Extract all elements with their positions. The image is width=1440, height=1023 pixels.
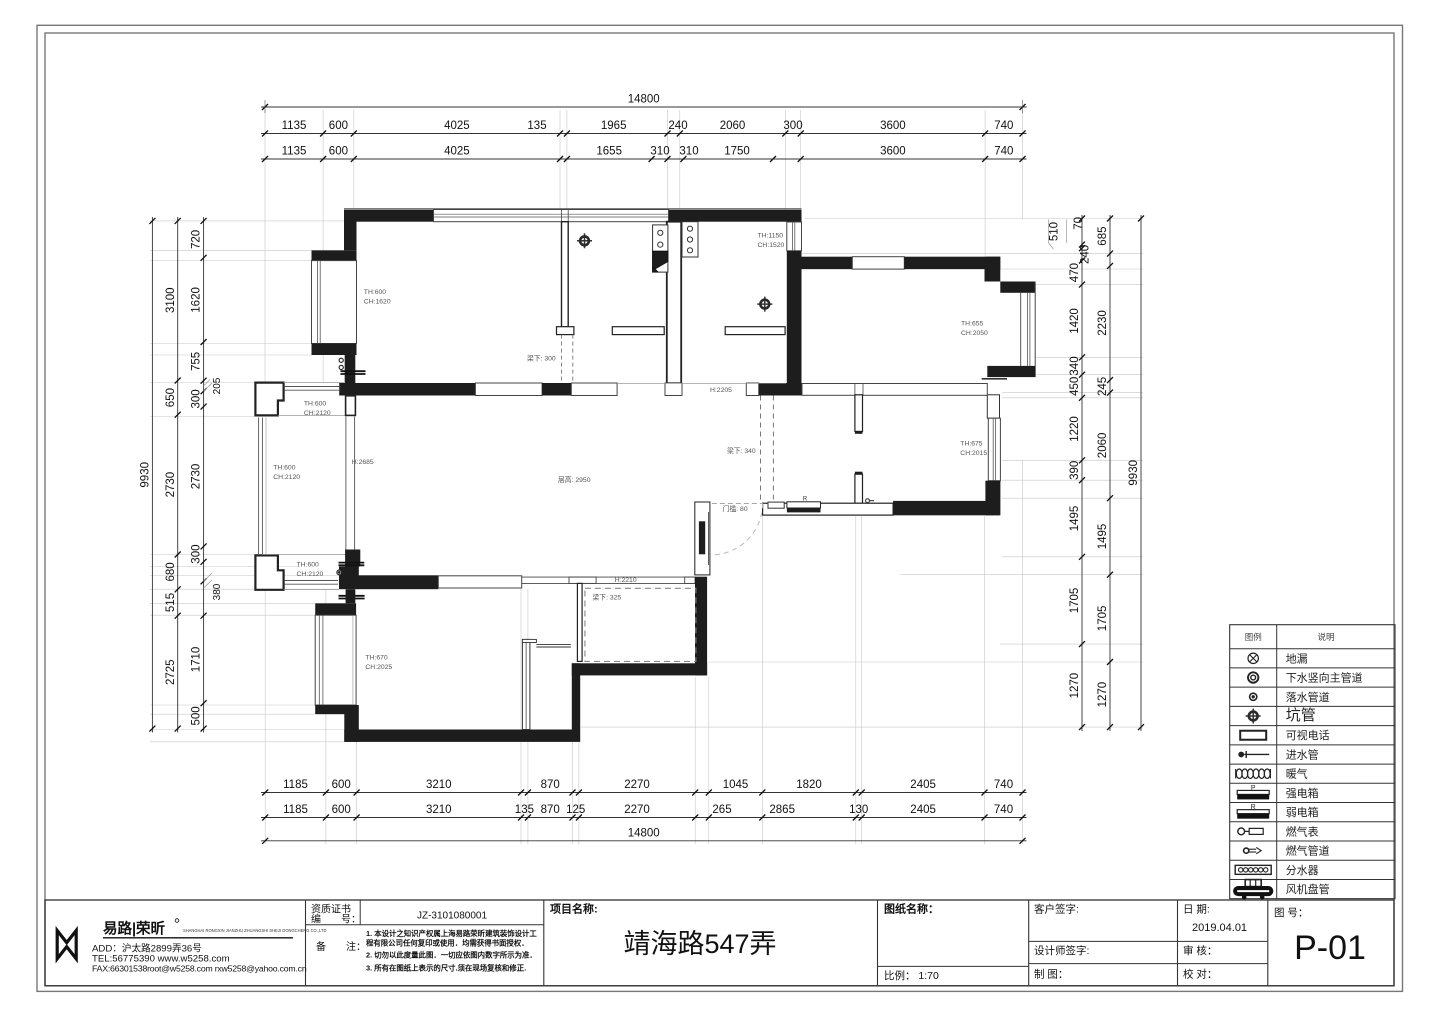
svg-text:注：: 注： xyxy=(346,940,366,953)
svg-text:500: 500 xyxy=(191,706,203,725)
svg-text:600: 600 xyxy=(332,804,351,816)
svg-text:9930: 9930 xyxy=(1128,460,1140,486)
svg-text:强电箱: 强电箱 xyxy=(1286,786,1319,800)
svg-text:1820: 1820 xyxy=(796,779,822,791)
svg-text:梁下: 340: 梁下: 340 xyxy=(727,446,756,455)
svg-text:CH:2050: CH:2050 xyxy=(961,330,988,337)
svg-text:备: 备 xyxy=(316,940,326,953)
svg-text:梁下: 300: 梁下: 300 xyxy=(527,354,556,363)
svg-text:SHANGHAI RONGXIN JIANZHU ZHUAN: SHANGHAI RONGXIN JIANZHU ZHUANGSHI SHEJI… xyxy=(183,928,326,933)
svg-text:1705: 1705 xyxy=(1097,606,1109,632)
svg-text:1135: 1135 xyxy=(282,120,307,132)
svg-text:坑管: 坑管 xyxy=(1286,707,1316,724)
svg-text:H:2685: H:2685 xyxy=(352,459,374,466)
svg-text:130: 130 xyxy=(849,804,868,816)
svg-text:300: 300 xyxy=(191,389,203,408)
svg-text:265: 265 xyxy=(712,804,731,816)
svg-text:205: 205 xyxy=(212,377,223,394)
svg-text:TH:675: TH:675 xyxy=(960,441,983,448)
svg-text:说明: 说明 xyxy=(1317,632,1334,642)
svg-text:CH:2015: CH:2015 xyxy=(960,450,987,457)
svg-text:1620: 1620 xyxy=(191,287,203,313)
svg-text:3600: 3600 xyxy=(880,120,906,132)
svg-text:2270: 2270 xyxy=(624,804,650,816)
svg-text:2730: 2730 xyxy=(191,464,203,490)
svg-text:CH:2025: CH:2025 xyxy=(365,664,392,671)
svg-text:515: 515 xyxy=(165,593,177,612)
svg-text:门槛: 80: 门槛: 80 xyxy=(723,504,748,513)
svg-text:470: 470 xyxy=(1069,263,1081,282)
svg-text:TH:600: TH:600 xyxy=(273,465,296,472)
svg-text:日 期:: 日 期: xyxy=(1183,904,1210,916)
svg-text:450: 450 xyxy=(1069,377,1081,396)
svg-text:600: 600 xyxy=(332,779,351,791)
svg-text:14800: 14800 xyxy=(628,827,660,839)
svg-text:校 对：: 校 对： xyxy=(1183,968,1217,981)
svg-text:3210: 3210 xyxy=(426,779,452,791)
svg-text:CH:2120: CH:2120 xyxy=(297,571,324,578)
svg-text:P-01: P-01 xyxy=(1294,929,1366,967)
svg-text:720: 720 xyxy=(191,230,203,249)
svg-text:600: 600 xyxy=(329,120,348,132)
svg-text:300: 300 xyxy=(191,545,203,564)
svg-text:870: 870 xyxy=(541,779,560,791)
svg-text:H:2210: H:2210 xyxy=(615,577,637,584)
svg-text:TH:1150: TH:1150 xyxy=(758,233,784,240)
svg-text:客户签字:: 客户签字: xyxy=(1034,903,1079,916)
svg-text:300: 300 xyxy=(783,120,802,132)
svg-text:1. 本设计之知识产权属上海易路荣昕建筑装饰设计工: 1. 本设计之知识产权属上海易路荣昕建筑装饰设计工 xyxy=(366,929,537,938)
svg-text:3100: 3100 xyxy=(165,287,177,313)
svg-text:审 核：: 审 核： xyxy=(1183,944,1217,957)
svg-text:1495: 1495 xyxy=(1097,524,1109,550)
svg-text:2270: 2270 xyxy=(624,779,650,791)
svg-text:可视电话: 可视电话 xyxy=(1286,728,1330,742)
svg-text:风机盘管: 风机盘管 xyxy=(1286,882,1330,896)
svg-text:740: 740 xyxy=(994,804,1013,816)
svg-text:1270: 1270 xyxy=(1069,673,1081,699)
svg-text:2405: 2405 xyxy=(910,779,936,791)
svg-text:740: 740 xyxy=(994,120,1013,132)
svg-text:245: 245 xyxy=(1097,377,1109,396)
svg-text:程有限公司任何复印或使用．均需获得书面授权．: 程有限公司任何复印或使用．均需获得书面授权． xyxy=(366,939,529,948)
svg-text:TH:655: TH:655 xyxy=(961,321,984,328)
svg-text:2019.04.01: 2019.04.01 xyxy=(1192,922,1247,934)
svg-text:TH:670: TH:670 xyxy=(365,655,388,662)
svg-text:680: 680 xyxy=(165,562,177,581)
svg-text:3. 所有在图纸上表示的尺寸.须在现场复核和修正.: 3. 所有在图纸上表示的尺寸.须在现场复核和修正. xyxy=(366,964,526,973)
svg-text:图例: 图例 xyxy=(1245,632,1262,642)
svg-text:650: 650 xyxy=(165,388,177,407)
svg-text:2405: 2405 xyxy=(910,804,936,816)
svg-text:2730: 2730 xyxy=(165,472,177,498)
svg-text:740: 740 xyxy=(994,146,1013,158)
svg-text:燃气表: 燃气表 xyxy=(1286,824,1319,838)
svg-text:弱电箱: 弱电箱 xyxy=(1286,805,1319,819)
svg-text:靖海路547弄: 靖海路547弄 xyxy=(623,929,776,959)
svg-text:2. 切勿以此度量此图．一切应依图内数字所示为准．: 2. 切勿以此度量此图．一切应依图内数字所示为准． xyxy=(366,951,537,960)
svg-text:比例： 1:70: 比例： 1:70 xyxy=(884,969,939,982)
svg-text:310: 310 xyxy=(650,146,669,158)
svg-text:1495: 1495 xyxy=(1069,506,1081,532)
svg-text:340: 340 xyxy=(1069,356,1081,375)
svg-text:3210: 3210 xyxy=(426,804,452,816)
svg-text:CH:2120: CH:2120 xyxy=(273,474,300,481)
svg-text:TH:600: TH:600 xyxy=(364,289,387,296)
svg-text:易路|荣昕: 易路|荣昕 xyxy=(103,920,166,938)
svg-text:制 图：: 制 图： xyxy=(1034,968,1068,981)
svg-text:H:2205: H:2205 xyxy=(710,387,732,394)
svg-text:JZ-3101080001: JZ-3101080001 xyxy=(417,911,487,922)
svg-text:2230: 2230 xyxy=(1097,310,1109,336)
svg-text:1185: 1185 xyxy=(283,804,308,816)
svg-text:14800: 14800 xyxy=(628,94,660,106)
svg-text:510: 510 xyxy=(1049,222,1061,241)
svg-text:1045: 1045 xyxy=(723,779,749,791)
svg-text:号：: 号： xyxy=(341,914,361,926)
svg-text:240: 240 xyxy=(668,120,687,132)
svg-text:暖气: 暖气 xyxy=(1286,767,1308,781)
svg-text:1135: 1135 xyxy=(282,146,307,158)
svg-text:燃气管道: 燃气管道 xyxy=(1286,844,1330,858)
svg-text:70: 70 xyxy=(1073,217,1085,230)
svg-text:310: 310 xyxy=(679,146,698,158)
svg-text:编: 编 xyxy=(311,913,321,926)
svg-text:390: 390 xyxy=(1069,461,1081,480)
svg-text:CH:1520: CH:1520 xyxy=(758,242,785,249)
svg-text:设计师签字:: 设计师签字: xyxy=(1034,944,1089,957)
svg-text:CH:1620: CH:1620 xyxy=(364,299,391,306)
svg-text:2725: 2725 xyxy=(165,659,177,685)
svg-text:1655: 1655 xyxy=(596,146,622,158)
svg-text:4025: 4025 xyxy=(444,120,470,132)
svg-text:TH:600: TH:600 xyxy=(304,401,327,408)
svg-text:下水竖向主管道: 下水竖向主管道 xyxy=(1286,671,1363,685)
svg-text:R: R xyxy=(803,497,808,503)
svg-text:2865: 2865 xyxy=(769,804,795,816)
svg-text:380: 380 xyxy=(212,583,223,600)
svg-text:FAX:66301538root@w5258.com rxw: FAX:66301538root@w5258.com rxw5258@yahoo… xyxy=(92,964,307,974)
svg-text:1750: 1750 xyxy=(724,146,750,158)
svg-text:740: 740 xyxy=(994,779,1013,791)
svg-text:落水管道: 落水管道 xyxy=(1286,690,1330,704)
svg-text:梁下: 325: 梁下: 325 xyxy=(593,593,622,602)
svg-text:CH:2120: CH:2120 xyxy=(304,410,331,417)
svg-text:1705: 1705 xyxy=(1069,588,1081,614)
svg-text:图 号：: 图 号： xyxy=(1274,907,1308,919)
svg-text:图纸名称：: 图纸名称： xyxy=(884,902,939,916)
svg-text:1420: 1420 xyxy=(1069,308,1081,334)
svg-text:TH:600: TH:600 xyxy=(297,562,320,569)
svg-text:240: 240 xyxy=(1080,245,1092,264)
svg-text:125: 125 xyxy=(566,804,585,816)
svg-text:870: 870 xyxy=(541,804,560,816)
svg-text:地漏: 地漏 xyxy=(1286,652,1308,665)
svg-text:135: 135 xyxy=(527,120,546,132)
svg-text:2060: 2060 xyxy=(720,120,746,132)
svg-text:755: 755 xyxy=(191,352,203,371)
svg-text:分水器: 分水器 xyxy=(1286,864,1319,877)
svg-text:1185: 1185 xyxy=(283,779,308,791)
svg-text:1220: 1220 xyxy=(1069,416,1081,442)
svg-text:项目名称:: 项目名称: xyxy=(550,902,598,916)
svg-text:600: 600 xyxy=(329,146,348,158)
svg-text:4025: 4025 xyxy=(444,146,470,158)
svg-text:3600: 3600 xyxy=(880,146,906,158)
svg-text:2060: 2060 xyxy=(1097,433,1109,459)
svg-text:685: 685 xyxy=(1097,227,1109,246)
svg-text:1710: 1710 xyxy=(191,647,203,673)
svg-text:进水管: 进水管 xyxy=(1286,747,1319,761)
svg-text:135: 135 xyxy=(515,804,534,816)
svg-text:层高: 2950: 层高: 2950 xyxy=(558,475,591,484)
svg-text:1965: 1965 xyxy=(601,120,627,132)
svg-text:9930: 9930 xyxy=(140,462,152,488)
svg-text:1270: 1270 xyxy=(1097,682,1109,708)
